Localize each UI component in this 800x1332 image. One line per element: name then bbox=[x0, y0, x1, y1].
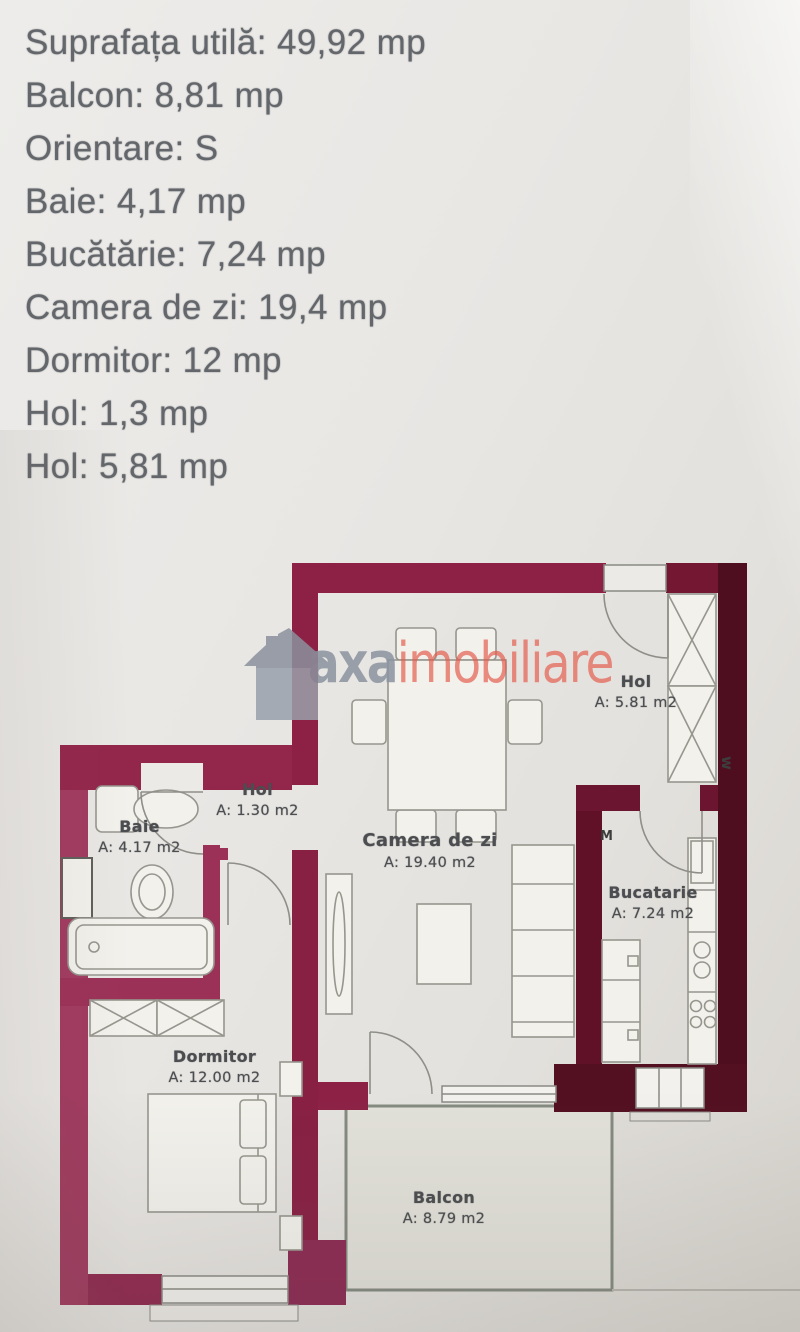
room-label-dormitor: Dormitor A: 12.00 m2 bbox=[152, 1047, 277, 1086]
listing-line: Suprafața utilă: 49,92 mp bbox=[25, 16, 426, 69]
bedroom-door-arc bbox=[228, 863, 290, 925]
room-label-balcon: Balcon A: 8.79 m2 bbox=[376, 1188, 512, 1227]
listing-line: Baie: 4,17 mp bbox=[25, 175, 426, 228]
bedroom-window bbox=[150, 1276, 298, 1321]
washing-machine-marker: M bbox=[600, 829, 613, 844]
listing-line: Orientare: S bbox=[25, 122, 426, 175]
listing-line: Balcon: 8,81 mp bbox=[25, 69, 426, 122]
shaft-box bbox=[62, 858, 92, 918]
room-name: Hol bbox=[200, 780, 315, 799]
room-area: A: 7.24 m2 bbox=[594, 906, 712, 922]
room-name: Dormitor bbox=[152, 1047, 277, 1066]
sofa-icon bbox=[512, 845, 574, 1037]
listing-line: Hol: 5,81 mp bbox=[25, 440, 426, 493]
room-label-camera-de-zi: Camera de zi A: 19.40 m2 bbox=[350, 830, 510, 871]
room-name: Bucatarie bbox=[594, 883, 712, 902]
livingroom-window bbox=[442, 1086, 556, 1102]
bathtub-icon bbox=[68, 918, 214, 975]
bedroom-wardrobe-icon bbox=[90, 1000, 224, 1036]
room-area: A: 8.79 m2 bbox=[376, 1211, 512, 1227]
room-area: A: 12.00 m2 bbox=[152, 1070, 277, 1086]
room-label-bucatarie: Bucatarie A: 7.24 m2 bbox=[594, 883, 712, 922]
room-label-hol-small: Hol A: 1.30 m2 bbox=[200, 780, 315, 819]
balcony-door-arc bbox=[370, 1032, 432, 1094]
coffee-table-icon bbox=[417, 904, 471, 984]
bath-door-opening bbox=[141, 763, 203, 792]
brand-axa: axa bbox=[308, 631, 397, 696]
listing-line: Camera de zi: 19,4 mp bbox=[25, 281, 426, 334]
entrance-opening bbox=[604, 565, 666, 591]
listing-details: Suprafața utilă: 49,92 mp Balcon: 8,81 m… bbox=[25, 16, 426, 493]
room-label-baie: Baie A: 4.17 m2 bbox=[82, 817, 197, 856]
listing-line: Dormitor: 12 mp bbox=[25, 334, 426, 387]
room-area: A: 19.40 m2 bbox=[350, 855, 510, 871]
room-area: A: 1.30 m2 bbox=[200, 803, 315, 819]
agency-watermark: axaimobiliare bbox=[244, 628, 671, 722]
listing-line: Hol: 1,3 mp bbox=[25, 387, 426, 440]
listing-line: Bucătărie: 7,24 mp bbox=[25, 228, 426, 281]
listing-photo: M w Suprafața utilă: 49,92 mp Balcon: 8,… bbox=[0, 0, 800, 1332]
kitchen-window bbox=[630, 1068, 710, 1121]
room-area: A: 4.17 m2 bbox=[82, 840, 197, 856]
bed-icon bbox=[148, 1062, 302, 1250]
room-name: Balcon bbox=[376, 1188, 512, 1207]
room-name: Baie bbox=[82, 817, 197, 836]
kitchen-counter-icon bbox=[602, 838, 716, 1064]
brand-imobiliare: imobiliare bbox=[397, 631, 613, 696]
tv-unit-icon bbox=[326, 874, 352, 1014]
sink-icon bbox=[131, 865, 173, 919]
brand-text: axaimobiliare bbox=[308, 636, 613, 692]
shaft-marker: w bbox=[718, 756, 736, 770]
room-name: Camera de zi bbox=[350, 830, 510, 851]
